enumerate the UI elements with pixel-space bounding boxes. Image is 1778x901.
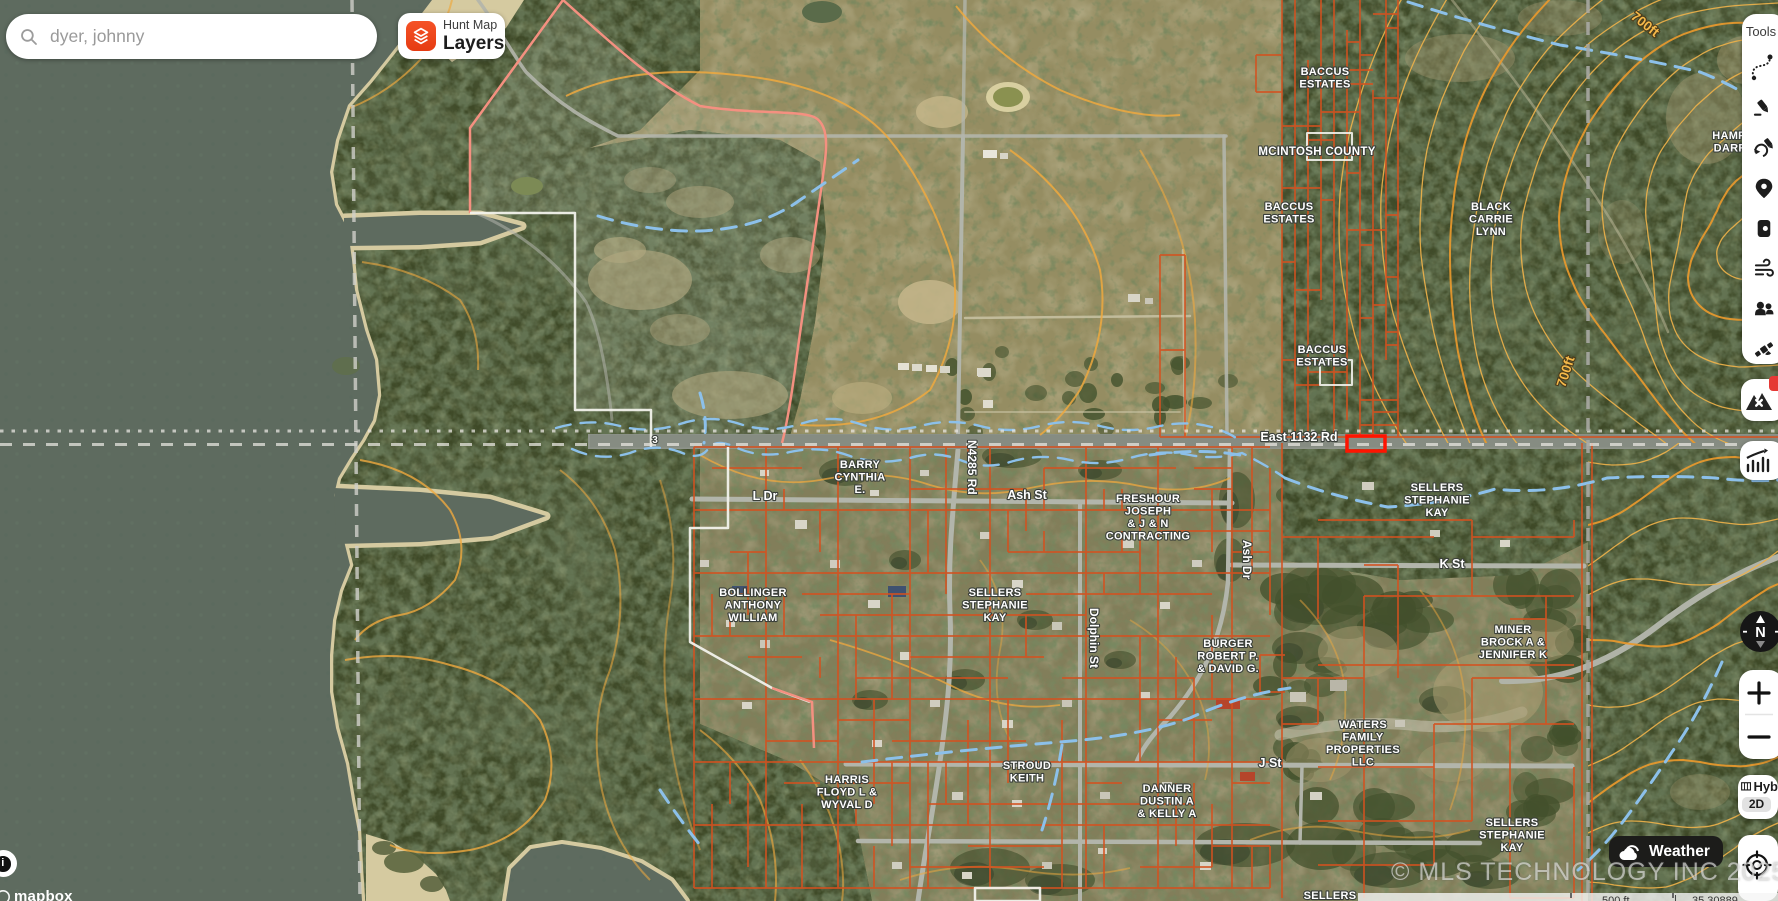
svg-text:K St: K St	[1440, 557, 1466, 571]
svg-text:BOLLINGERANTHONYWILLIAM: BOLLINGERANTHONYWILLIAM	[719, 587, 786, 624]
svg-text:MCINTOSH COUNTY: MCINTOSH COUNTY	[1258, 146, 1375, 158]
svg-text:HARRISFLOYD L &WYVAL D: HARRISFLOYD L &WYVAL D	[817, 774, 878, 811]
svg-text:DANNERDUSTIN A& KELLY A: DANNERDUSTIN A& KELLY A	[1137, 783, 1196, 820]
svg-text:BACCUSESTATES: BACCUSESTATES	[1296, 344, 1347, 369]
svg-text:BACCUSESTATES: BACCUSESTATES	[1263, 201, 1314, 226]
svg-text:BURGERROBERT P.& DAVID G.: BURGERROBERT P.& DAVID G.	[1197, 638, 1259, 675]
svg-text:Ash St: Ash St	[1007, 488, 1047, 502]
svg-text:Dolphin St: Dolphin St	[1087, 608, 1101, 668]
svg-text:East 1132 Rd: East 1132 Rd	[1260, 430, 1337, 444]
svg-text:L Dr: L Dr	[753, 489, 778, 503]
svg-text:3: 3	[652, 435, 658, 446]
svg-text:N: N	[1755, 625, 1765, 641]
svg-text:J St: J St	[1259, 756, 1283, 770]
svg-text:SELLERS: SELLERS	[1304, 890, 1357, 901]
svg-text:N4285 Rd: N4285 Rd	[965, 440, 979, 495]
svg-text:Ash Dr: Ash Dr	[1240, 540, 1254, 580]
svg-text:STROUDKEITH: STROUDKEITH	[1003, 760, 1051, 785]
svg-text:BACCUSESTATES: BACCUSESTATES	[1299, 66, 1350, 91]
